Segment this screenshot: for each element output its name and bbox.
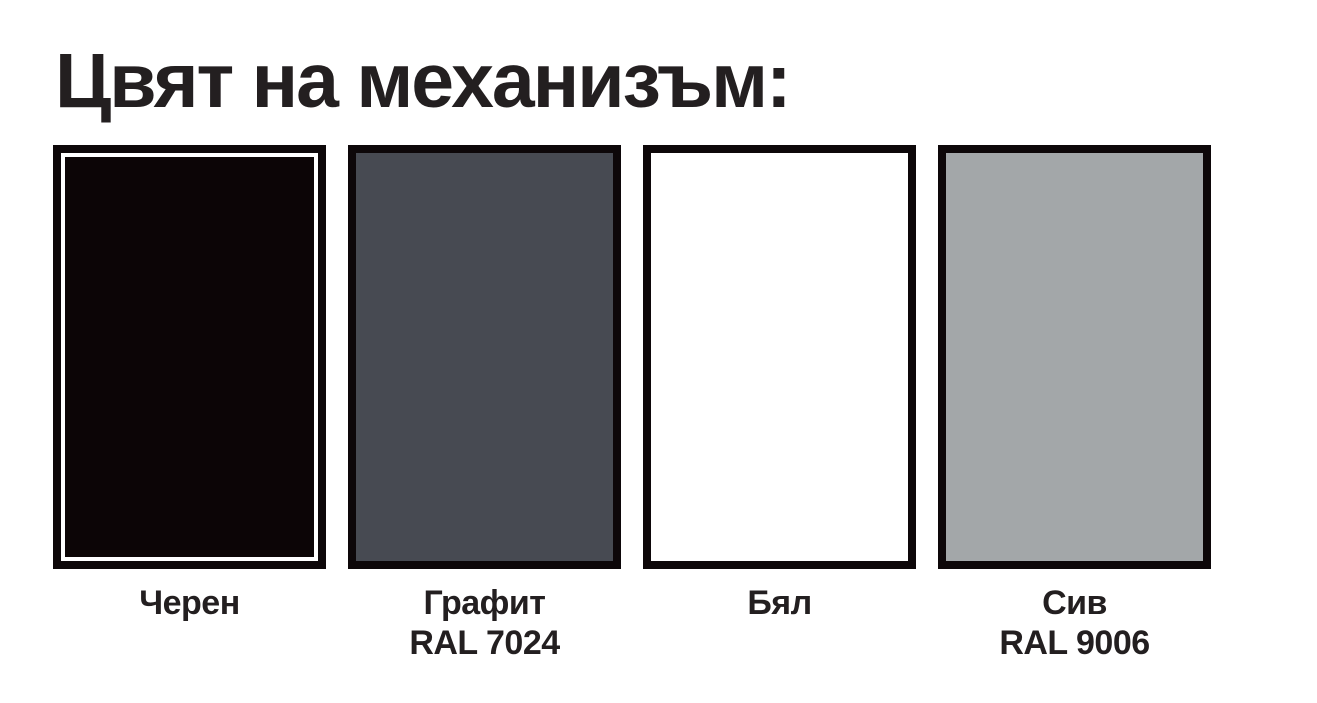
swatch-label-white-line1: Бял [747,583,811,623]
swatch-white [643,145,916,569]
swatch-label-gray-line2: RAL 9006 [999,623,1149,663]
swatch-label-graphite-line2: RAL 7024 [409,623,559,663]
swatch-label-white: Бял [747,583,811,663]
swatch-label-gray: Сив RAL 9006 [999,583,1149,663]
swatch-gray-ral-9006 [938,145,1211,569]
page-title: Цвят на механизъм: [55,43,790,120]
swatch-label-black-line1: Черен [139,583,240,623]
swatch-label-graphite-line1: Графит [409,583,559,623]
swatch-row: Черен Графит RAL 7024 Бял Сив RAL 9006 [53,145,1211,663]
swatch-item-graphite: Графит RAL 7024 [348,145,621,663]
swatch-item-white: Бял [643,145,916,663]
swatch-label-gray-line1: Сив [999,583,1149,623]
swatch-label-black: Черен [139,583,240,663]
swatch-item-gray: Сив RAL 9006 [938,145,1211,663]
swatch-label-graphite: Графит RAL 7024 [409,583,559,663]
swatch-graphite-ral-7024 [348,145,621,569]
mechanism-color-options-graphic: Цвят на механизъм: Черен Графит RAL 7024… [0,0,1317,703]
swatch-black [53,145,326,569]
swatch-item-black: Черен [53,145,326,663]
